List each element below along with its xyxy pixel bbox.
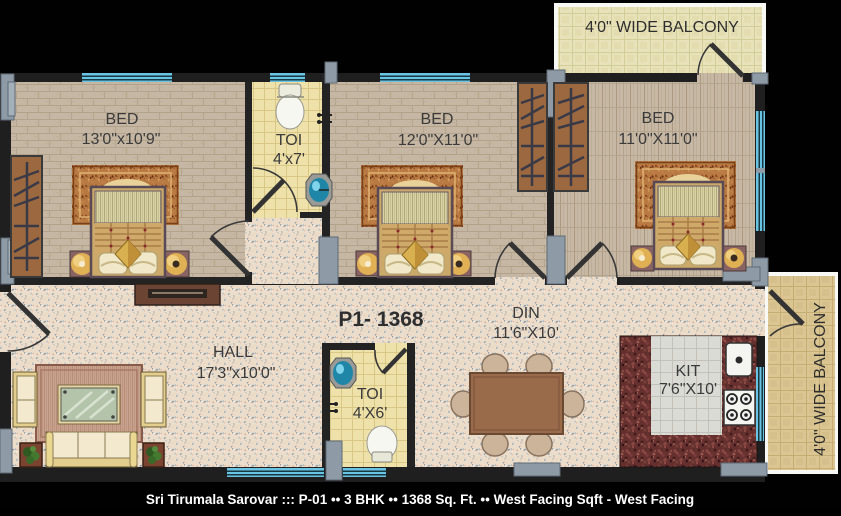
svg-text:BED: BED [106,111,139,128]
svg-text:4'0" WIDE BALCONY: 4'0" WIDE BALCONY [812,302,829,456]
svg-text:TOI: TOI [276,132,302,149]
svg-text:11'6"X10': 11'6"X10' [493,325,559,342]
svg-text:DIN: DIN [512,305,540,322]
svg-text:HALL: HALL [213,344,253,361]
svg-text:13'0"x10'9": 13'0"x10'9" [82,131,161,148]
svg-text:4'0" WIDE BALCONY: 4'0" WIDE BALCONY [585,19,739,36]
svg-text:Sri Tirumala Sarovar ::: P-01: Sri Tirumala Sarovar ::: P-01 •• 3 BHK •… [146,492,694,507]
svg-text:TOI: TOI [357,386,383,403]
svg-text:P1- 1368: P1- 1368 [338,308,424,331]
svg-text:11'0"X11'0": 11'0"X11'0" [618,131,697,148]
svg-text:4'x7': 4'x7' [273,151,305,168]
svg-text:4'X6': 4'X6' [353,405,388,422]
svg-text:KIT: KIT [676,363,701,380]
svg-text:BED: BED [421,111,454,128]
svg-text:17'3"x10'0": 17'3"x10'0" [197,365,276,382]
svg-text:BED: BED [642,110,675,127]
svg-text:7'6"X10': 7'6"X10' [659,381,717,398]
svg-text:12'0"X11'0": 12'0"X11'0" [398,132,478,149]
